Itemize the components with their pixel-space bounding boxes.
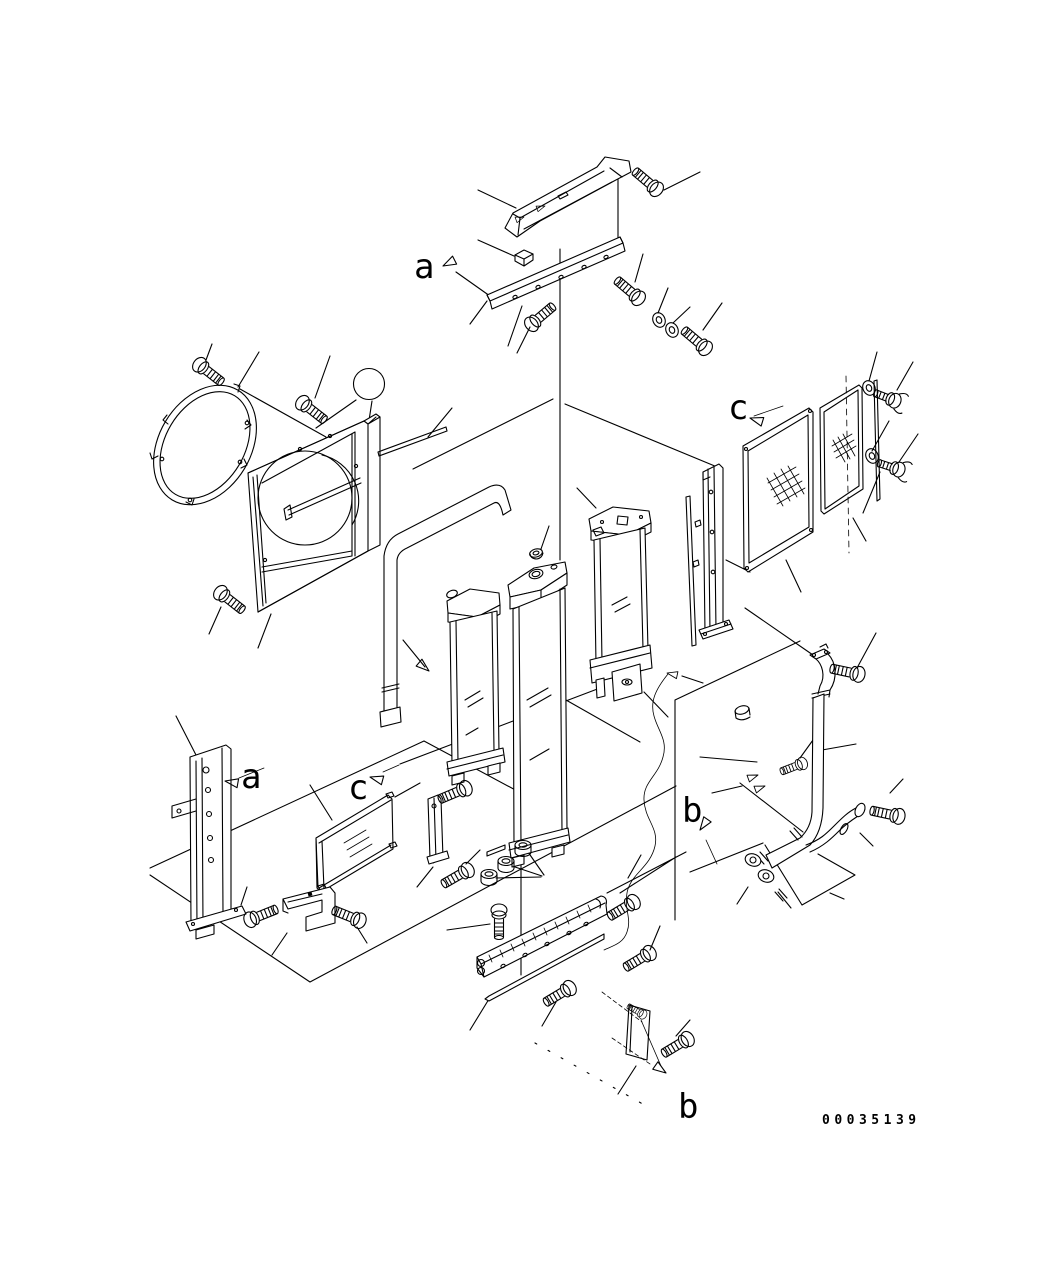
shroud-brace-strip: [378, 427, 447, 456]
u-clamp-bolts: [242, 901, 369, 930]
view-letter: b: [678, 1087, 698, 1127]
top-cover-panel: [505, 157, 631, 237]
fan-shroud: [248, 414, 380, 612]
aftercooler: [589, 507, 652, 701]
view-letter: b: [682, 791, 702, 831]
view-label-a-top: a: [414, 247, 457, 287]
side-mount-bracket: [172, 745, 246, 939]
oil-cooler: [446, 589, 505, 785]
support-strip-upper: [487, 845, 505, 856]
side-seal-strip: [686, 496, 696, 646]
callout-badge-35[interactable]: 35: [354, 369, 385, 400]
top-cover-bolt: [629, 164, 666, 199]
view-letter: c: [348, 768, 368, 808]
view-label-b-bottom: b: [641, 1020, 698, 1127]
exploded-parts-diagram: a 35: [0, 0, 1051, 1273]
fastener-row: [611, 273, 715, 358]
bar-mount-bolt: [522, 299, 559, 334]
screen-wing-bolts: [860, 379, 912, 483]
figure-number: 00035139: [822, 1113, 921, 1128]
view-label-c-top: c: [728, 388, 783, 428]
view-letter: a: [241, 757, 261, 797]
badge-number: 35: [359, 375, 378, 393]
oil-cooler-pointer-arrow: [416, 659, 432, 674]
small-side-bracket: [427, 779, 477, 892]
view-letter: c: [728, 388, 748, 428]
parts-diagram-page: a 35: [0, 0, 1051, 1273]
water-pipe-assembly: [734, 644, 906, 901]
mesh-screen-front: [743, 408, 813, 572]
view-label-b-right: b: [682, 791, 717, 864]
upper-support-bar: [487, 237, 625, 309]
lower-small-bracket: [602, 992, 650, 1064]
lower-support-bar: [477, 896, 607, 977]
spacer-block: [515, 250, 533, 266]
radiator: [508, 562, 570, 867]
view-letter: a: [414, 247, 434, 287]
u-clamp-bracket: [283, 887, 335, 931]
radiator-cap-loose: [529, 547, 544, 559]
mesh-screen-rear: [820, 376, 880, 553]
side-channel-bracket: [693, 464, 733, 639]
